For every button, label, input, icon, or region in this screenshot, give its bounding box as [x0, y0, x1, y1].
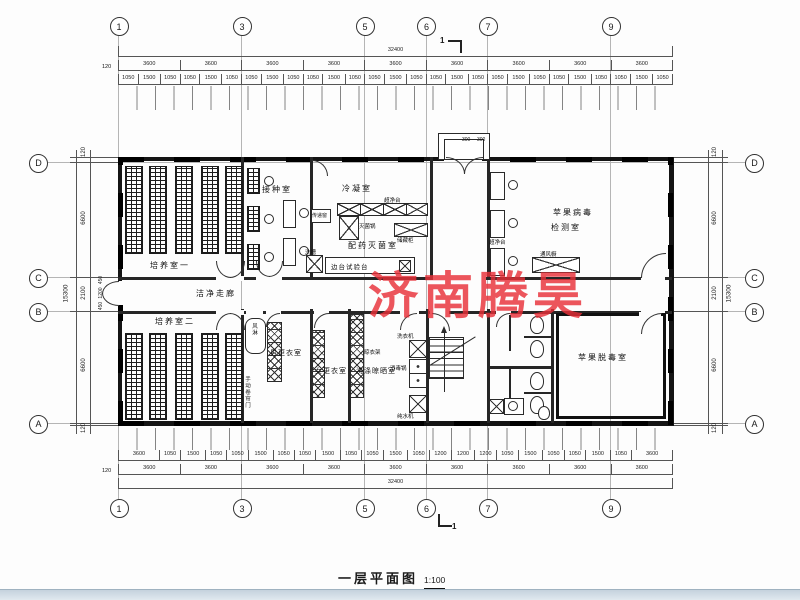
window-band: [668, 157, 673, 425]
window-band: [118, 157, 674, 162]
water-purifier-label: 纯水机: [397, 412, 414, 420]
culture-rack: [125, 166, 143, 254]
dim-tick: [672, 157, 728, 158]
grid-bubble: B: [745, 303, 764, 322]
basin: [508, 401, 518, 411]
air-shower-label: 风淋: [250, 323, 258, 336]
dim-value: 120: [102, 468, 111, 474]
dim-tick: [70, 162, 118, 163]
section-marker-bottom: 1: [452, 522, 456, 531]
toilet: [530, 372, 544, 390]
dim-row-bottom-bays: 360036003600360036003600360036003600: [118, 464, 673, 475]
culture-rack: [201, 166, 219, 254]
room-label-inoculation: 接种室: [262, 184, 292, 195]
inoculation-bench: [247, 206, 260, 232]
dim-value: 1500: [519, 450, 544, 460]
wall: [487, 366, 551, 369]
storage-cabinet: [394, 223, 428, 237]
dim-value: 2100: [81, 278, 87, 308]
grid-bubble: 1: [110, 499, 129, 518]
room-label-culture1: 培养室一: [150, 260, 190, 271]
dim-value: 15300: [726, 279, 733, 309]
dim-tick: [672, 162, 728, 163]
dim-value: 3600: [242, 60, 304, 70]
dim-value: 1050: [284, 74, 304, 84]
grid-bubble: 9: [602, 499, 621, 518]
storage-cabinet-label: 储藏柜: [397, 236, 414, 244]
dim-value: 1050: [611, 450, 632, 460]
door-opening: [246, 310, 263, 315]
dim-value: 1050: [222, 74, 242, 84]
dim-value: 1050: [227, 450, 248, 460]
dim-row-bottom-detail: 3600105015001050105015001050105015001050…: [118, 450, 673, 461]
clean-bench: [490, 172, 505, 200]
dim-value: 3600: [242, 464, 304, 474]
stool: [508, 180, 518, 190]
sterilizer: [409, 373, 427, 388]
dim-value: 3600: [550, 464, 612, 474]
grid-bubble: B: [29, 303, 48, 322]
dim-value: 1050: [407, 74, 427, 84]
room-label-virus-line1: 苹果病毒: [553, 207, 593, 218]
culture-rack: [225, 166, 243, 254]
dim-tick: [70, 425, 118, 426]
grid-bubble: C: [745, 269, 764, 288]
drying-rack-label: 晾衣架: [364, 348, 381, 356]
culture-rack: [149, 333, 167, 420]
dim-row-top-overall: 32400: [118, 46, 673, 57]
dim-row-top-detail: 1050150010501050150010501050150010501050…: [118, 74, 673, 85]
culture-rack: [125, 333, 143, 420]
room-label-women: 女更衣室: [315, 366, 347, 376]
dim-tick: [70, 311, 118, 312]
dim-value: 1050: [427, 74, 447, 84]
culture-rack: [201, 333, 219, 420]
dim-value: 6600: [712, 203, 718, 233]
dim-tick: [70, 157, 118, 158]
urinal: [538, 406, 550, 420]
dim-value: 3600: [365, 60, 427, 70]
bench-row: [383, 203, 407, 216]
dim-value: 3600: [488, 464, 550, 474]
dim-value: 1500: [508, 74, 530, 84]
dim-value: 1050: [206, 450, 227, 460]
dim-value: 1050: [181, 74, 201, 84]
section-marker-top: 1: [440, 36, 444, 45]
dim-value: 120: [81, 137, 87, 167]
dim-value: 1200: [430, 450, 452, 460]
room-label-corridor: 洁净走廊: [196, 288, 236, 299]
dim-value: 1500: [262, 74, 284, 84]
inoculation-bench: [283, 200, 296, 228]
dim-ticks: [118, 86, 672, 110]
dim-value: 1050: [274, 450, 295, 460]
inoculation-bench: [247, 168, 260, 194]
culture-rack: [149, 166, 167, 254]
dim-value: 3600: [119, 60, 181, 70]
sink: [489, 399, 504, 414]
washer: [409, 340, 427, 358]
dim-value: 3600: [427, 464, 489, 474]
dim-value: 120: [81, 413, 87, 443]
grid-bubble: 5: [356, 17, 375, 36]
section-marker-top-bracket: [448, 40, 462, 53]
bottom-strip: [0, 589, 800, 600]
lockers: [311, 330, 325, 398]
dim-line: [76, 150, 77, 434]
grid-bubble: 7: [479, 17, 498, 36]
autoclave: [339, 216, 359, 240]
culture-rack: [175, 333, 193, 420]
bench-row: [360, 203, 384, 216]
dim-value: 1050: [653, 74, 673, 84]
dim-line: [708, 150, 709, 434]
grid-bubble: C: [29, 269, 48, 288]
dim-value: 1050: [160, 450, 181, 460]
door-arc: [641, 253, 666, 278]
floor-plan-drawing: 超净台 灭菌锅 储藏柜 传递窗 洗槽 边台试验台 超净台 通风橱 1200 30…: [0, 0, 800, 600]
room-label-virus-line2: 检测室: [551, 222, 581, 233]
water-purifier: [409, 395, 427, 413]
dim-value: 120: [712, 413, 718, 443]
dim-value: 6600: [81, 350, 87, 380]
grid-bubble: 6: [417, 17, 436, 36]
inoculation-bench: [247, 244, 260, 270]
dim-value: 1500: [249, 450, 274, 460]
grid-bubble: 3: [233, 17, 252, 36]
grid-bubble: 6: [417, 499, 436, 518]
bench-row: [406, 203, 428, 216]
dim-value: 1050: [611, 74, 631, 84]
dim-value: 1500: [569, 74, 591, 84]
dim-value: 3600: [304, 464, 366, 474]
grid-bubble: 9: [602, 17, 621, 36]
dim-value: 1050: [365, 74, 385, 84]
wall: [524, 336, 551, 338]
wall: [524, 392, 551, 394]
dim-tick: [672, 311, 728, 312]
dim-value: 1050: [550, 74, 570, 84]
dim-value: 1200: [475, 450, 497, 460]
dim-value: 3600: [304, 60, 366, 70]
dim-line: [90, 150, 91, 434]
wall: [509, 368, 511, 402]
bench-row-label: 超净台: [384, 196, 401, 204]
dim-value: 3600: [181, 464, 243, 474]
grid-bubble: A: [29, 415, 48, 434]
dim-value: 1050: [362, 450, 383, 460]
dim-value: 1200: [452, 450, 474, 460]
dim-value: 1500: [323, 74, 345, 84]
rolling-door-label: 手动卷帘门: [243, 376, 251, 409]
dim-value: 1500: [384, 450, 409, 460]
grid-bubble: 5: [356, 499, 375, 518]
dim-row-bottom-overall: 32400: [118, 478, 673, 489]
dim-value: 1500: [586, 450, 611, 460]
dim-value: 1500: [200, 74, 222, 84]
dim-value: 1050: [346, 74, 366, 84]
culture-rack: [225, 333, 243, 420]
dim-value: 1500: [139, 74, 161, 84]
dim-value: 3600: [119, 450, 160, 460]
dim-value: 6600: [81, 203, 87, 233]
dim-row-top-bays: 360036003600360036003600360036003600: [118, 60, 673, 71]
dim-value: 6600: [712, 350, 718, 380]
dim-value: 1050: [295, 450, 316, 460]
dim-value: 3600: [427, 60, 489, 70]
lockers: [350, 314, 364, 398]
washer-label: 洗衣机: [397, 332, 414, 340]
bench-row: [337, 203, 361, 216]
sink-label: 洗槽: [305, 248, 316, 256]
door-arc: [314, 313, 329, 328]
side-bench-label: 边台试验台: [331, 261, 369, 271]
dim-line: [722, 150, 723, 434]
door-arc: [102, 293, 119, 306]
dim-value: 1050: [497, 450, 518, 460]
dim-value: 1050: [242, 74, 262, 84]
room-label-dispensing: 配药灭菌室: [348, 240, 398, 251]
dim-value: 1050: [119, 74, 139, 84]
grid-line: [610, 34, 611, 500]
dim-tick: [672, 423, 728, 424]
drawing-title: 一层平面图: [338, 568, 418, 590]
toilet: [530, 340, 544, 358]
dim-tick: [70, 277, 118, 278]
dim-value: 1050: [304, 74, 324, 84]
dim-ticks: [118, 428, 672, 450]
stool: [299, 208, 309, 218]
dim-value: 1050: [592, 74, 612, 84]
dim-value: 3600: [488, 60, 550, 70]
pass-window-label: 传递窗: [312, 212, 327, 219]
dim-value: 3600: [612, 60, 674, 70]
dim-value: 3600: [612, 464, 674, 474]
dim-value: 1050: [161, 74, 181, 84]
drawing-title-block: 一层平面图 1:100: [338, 568, 445, 590]
dim-tick: [672, 425, 728, 426]
dim-value: 3600: [119, 464, 181, 474]
sterilizer: [409, 359, 427, 374]
dim-value: 1500: [181, 450, 206, 460]
grid-bubble: 3: [233, 499, 252, 518]
dim-value: 1050: [488, 74, 508, 84]
dim-value: 1050: [341, 450, 362, 460]
dim-value: 2100: [712, 278, 718, 308]
dim-value: 300: [477, 137, 485, 143]
grid-line: [46, 162, 754, 163]
staircase-treads: [429, 337, 464, 379]
dim-value: 32400: [119, 478, 673, 488]
culture-rack: [175, 166, 193, 254]
dim-value: 120: [102, 64, 111, 70]
dim-value: 1500: [385, 74, 407, 84]
dim-value: 3600: [632, 450, 673, 460]
dim-value: 3600: [550, 60, 612, 70]
room-label-washing: 洗涤晾晒室: [356, 366, 396, 376]
dim-value: 1050: [469, 74, 489, 84]
dim-value: 1050: [408, 450, 429, 460]
watermark-text: 济南腾昊: [368, 256, 588, 328]
grid-bubble: D: [745, 154, 764, 173]
grid-bubble: 7: [479, 499, 498, 518]
dim-value: 15300: [63, 279, 70, 309]
grid-bubble: 1: [110, 17, 129, 36]
staircase-arrow: [444, 330, 445, 392]
clean-bench-label: 超净台: [489, 238, 506, 246]
dim-value: 1500: [631, 74, 653, 84]
dim-value: 1050: [565, 450, 586, 460]
dim-value: 300: [462, 137, 470, 143]
dim-value: 3600: [181, 60, 243, 70]
dim-value: 1050: [543, 450, 564, 460]
room-label-men: 男更衣室: [270, 348, 302, 358]
dim-tick: [672, 277, 728, 278]
dim-value: 1500: [316, 450, 341, 460]
stool: [264, 252, 274, 262]
dim-value: 32400: [119, 46, 673, 56]
autoclave-label: 灭菌锅: [359, 222, 376, 230]
drawing-scale: 1:100: [424, 575, 445, 589]
room-label-culture2: 培养室二: [155, 316, 195, 327]
window-band: [118, 421, 674, 426]
clean-bench: [490, 210, 505, 238]
stool: [508, 218, 518, 228]
room-label-condensation: 冷凝室: [342, 183, 372, 194]
dim-value: 3600: [365, 464, 427, 474]
grid-bubble: D: [29, 154, 48, 173]
stool: [264, 214, 274, 224]
dim-tick: [70, 423, 118, 424]
section-marker-bottom-bracket: [438, 514, 452, 527]
room-label-detox: 苹果脱毒室: [578, 352, 628, 363]
sink: [306, 255, 323, 273]
inoculation-bench: [283, 238, 296, 266]
dim-value: 1500: [446, 74, 468, 84]
dim-value: 1050: [530, 74, 550, 84]
grid-bubble: A: [745, 415, 764, 434]
door-arc: [216, 313, 231, 330]
dim-value: 120: [712, 137, 718, 167]
